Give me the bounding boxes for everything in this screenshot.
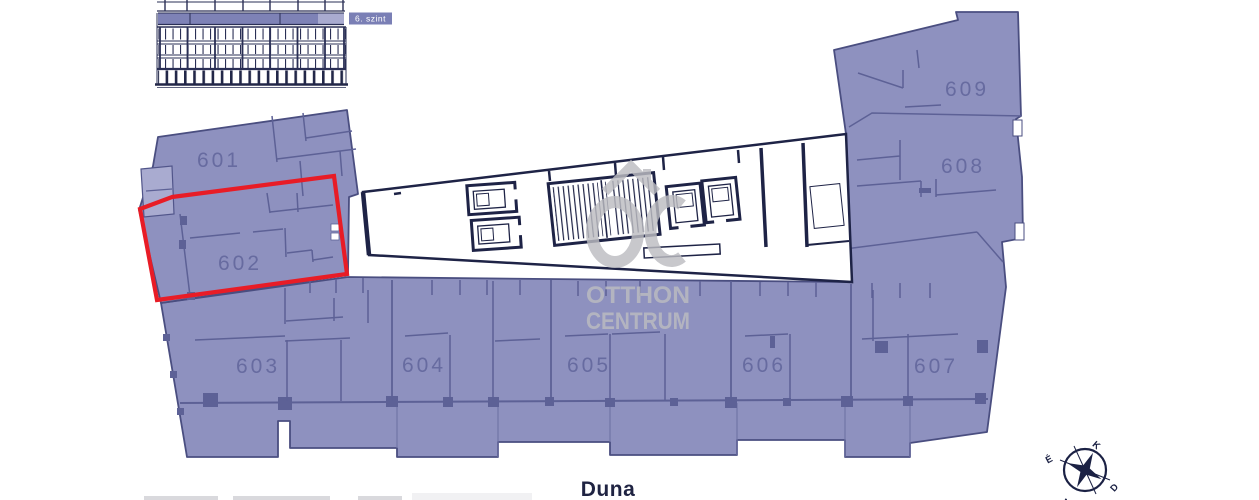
apartment-label-604: 604 [402, 354, 446, 377]
highlighted-floor-band [158, 13, 344, 25]
cropped-legend-marks [144, 493, 532, 500]
apartment-region-608[interactable] [845, 113, 1023, 250]
river-label: Duna [581, 478, 636, 500]
apartment-label-601: 601 [197, 149, 241, 172]
floor-plan-canvas: 6. szint [0, 0, 1259, 500]
apartment-region-607[interactable] [845, 232, 1006, 443]
apartment-label-603: 603 [236, 355, 280, 378]
compass-icon: É K D Ny [1044, 439, 1121, 500]
apartment-label-605: 605 [567, 354, 611, 377]
floor-plan-page: 6. szint [0, 0, 1259, 500]
watermark-line2: CENTRUM [586, 308, 690, 335]
watermark-line1: OTTHON [586, 282, 690, 309]
floor-level-label: 6. szint [355, 14, 386, 24]
apartment-label-607: 607 [914, 355, 958, 378]
apartment-label-606: 606 [742, 354, 786, 377]
floor-level-tag: 6. szint [349, 13, 392, 25]
apartment-label-602: 602 [218, 252, 262, 275]
compass-south-label: D [1108, 482, 1121, 495]
building-elevation: 6. szint [155, 0, 392, 88]
apartment-label-609: 609 [945, 78, 989, 101]
apartment-label-608: 608 [941, 155, 985, 178]
compass-north-label: É [1044, 454, 1055, 467]
